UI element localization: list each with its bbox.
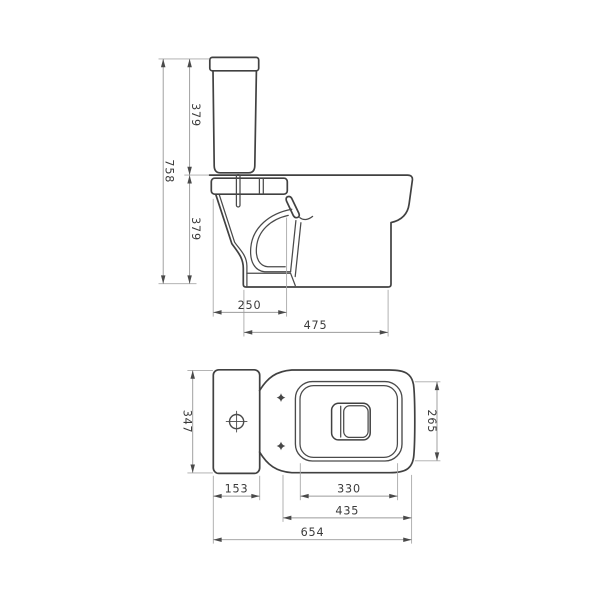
bowl-interior-curve-inner (256, 215, 288, 266)
cistern-body-outline (213, 71, 256, 173)
dim-label-pan-width: 265 (425, 409, 438, 433)
plan-view: 347 265 153 330 435 654 (181, 370, 441, 544)
side-view: 758 379 379 250 475 (159, 57, 413, 336)
seat-hinge-divider (259, 178, 263, 194)
base-cutaway-lines (247, 273, 295, 285)
technical-drawing: 758 379 379 250 475 (0, 0, 600, 600)
dim-label-cistern-width: 347 (181, 410, 194, 434)
dim-label-pan-length: 435 (335, 504, 359, 517)
seat-profile-outline (211, 178, 287, 194)
dim-label-overall-height: 758 (163, 159, 176, 183)
rim-flush-curve (300, 216, 313, 219)
flush-button-crosshair-lines (226, 411, 247, 432)
dim-label-seat-opening-length: 330 (337, 483, 361, 496)
bowl-interior-edge-outer (291, 221, 296, 272)
seat-fixing-hole-marker (277, 442, 286, 451)
bowl-interior-edge-inner (295, 223, 301, 277)
dim-label-pan-height: 379 (189, 217, 202, 241)
side-view-object (209, 57, 412, 287)
bowl-interior-curve-outer (251, 209, 292, 272)
cistern-lid-outline (210, 57, 259, 70)
hinge-pin-slot (236, 175, 240, 207)
seat-bumper-outline (286, 197, 299, 218)
seat-rim-outer-ring (295, 382, 402, 461)
dim-label-overall-length: 654 (301, 526, 325, 539)
sump-outline (332, 403, 371, 440)
dim-label-front-projection: 250 (238, 299, 262, 312)
sump-inner-outline (344, 406, 368, 438)
dim-label-cistern-height: 379 (189, 103, 202, 127)
dim-label-base-depth: 475 (304, 319, 328, 332)
side-view-dimensions: 758 379 379 250 475 (159, 59, 389, 337)
seat-rim-inner-ring (300, 386, 397, 458)
dim-label-cistern-depth: 153 (225, 483, 249, 496)
seat-fixing-hole-marker (277, 393, 286, 402)
plan-view-object (213, 370, 414, 474)
